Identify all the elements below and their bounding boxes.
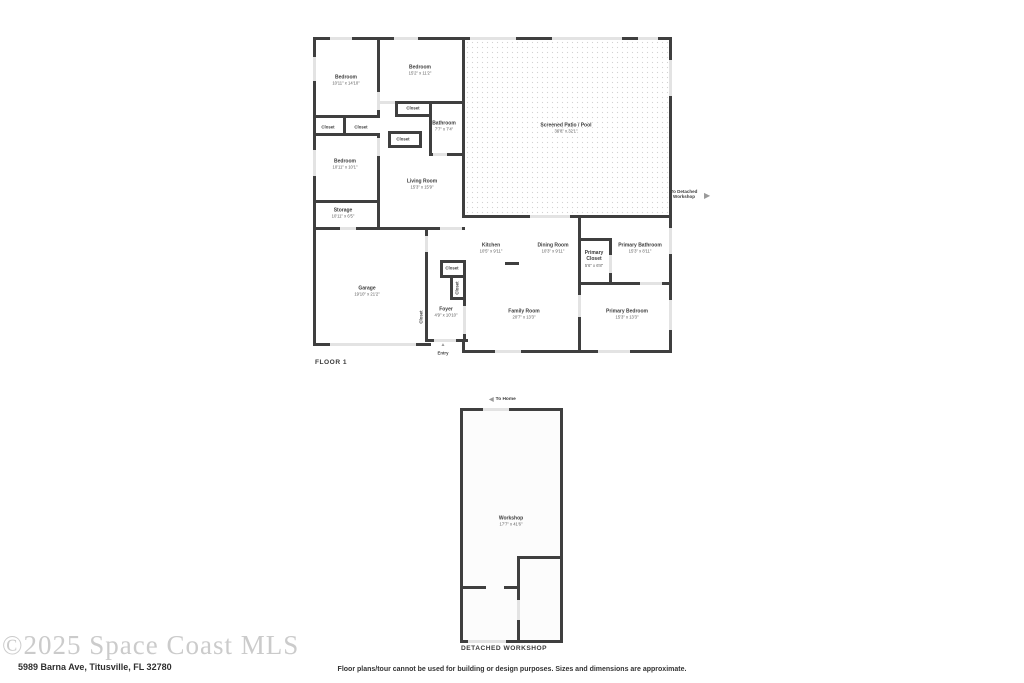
room-label-bathroom: Bathroom 7'7" x 7'4": [432, 120, 456, 132]
wall: [560, 408, 563, 643]
wall: [313, 37, 316, 346]
room-dims: 15'2" x 11'2": [409, 71, 432, 76]
arrow-left-icon: ◀: [489, 396, 494, 403]
wall-opening: [380, 101, 395, 104]
wall-opening: [640, 282, 662, 285]
wall: [313, 115, 380, 118]
wall-opening: [495, 350, 521, 353]
room-label-screened-patio: Screened Patio / Pool 36'8" x 32'1": [540, 122, 591, 134]
wall: [377, 200, 380, 230]
arrow-right-icon: ▶: [704, 191, 710, 200]
wall: [440, 260, 443, 278]
wall-opening: [468, 640, 506, 643]
wall-opening: [517, 600, 520, 620]
wall: [388, 131, 391, 148]
wall: [463, 260, 466, 300]
closet-label: Closet: [419, 309, 424, 324]
wall: [388, 131, 422, 134]
to-detached-workshop-nav[interactable]: To Detached Workshop ▶: [664, 189, 704, 199]
wall: [460, 586, 486, 589]
floor1-caption: FLOOR 1: [315, 359, 347, 366]
wall-opening: [598, 350, 630, 353]
room-dims: 10'11" x 10'1": [333, 165, 358, 170]
wall-opening: [394, 37, 418, 40]
to-detached-workshop-label: To Detached Workshop: [664, 189, 704, 199]
wall: [504, 586, 518, 589]
wall: [505, 262, 519, 265]
room-dims: 10'11" x 14'10": [332, 81, 359, 86]
room-label-bedroom-2: Bedroom 15'2" x 11'2": [409, 64, 432, 76]
wall-opening: [425, 236, 428, 252]
room-label-primary-bathroom: Primary Bathroom 15'3" x 8'11": [618, 242, 662, 254]
wall-opening: [669, 300, 672, 330]
wall: [517, 556, 563, 559]
entry-label: Entry: [438, 351, 449, 356]
room-label-primary-bedroom: Primary Bedroom 15'3" x 13'3": [606, 308, 648, 320]
room-dims: 19'10" x 21'2": [354, 292, 379, 297]
closet-label: Closet: [445, 266, 458, 271]
wall-opening: [330, 343, 416, 346]
closet-label: Closet: [396, 137, 409, 142]
wall: [460, 408, 563, 411]
wall-opening: [669, 228, 672, 254]
room-label-kitchen: Kitchen 10'5" x 9'11": [480, 242, 503, 254]
closet-label: Closet: [455, 280, 460, 295]
wall-opening: [313, 57, 316, 81]
room-dims: 7'7" x 7'4": [432, 127, 456, 132]
mls-watermark: ©2025 Space Coast MLS: [2, 630, 299, 661]
room-dims: 15'3" x 15'9": [407, 185, 437, 190]
room-dims: 15'3" x 8'11": [618, 249, 662, 254]
room-dims: 10'5" x 9'11": [480, 249, 503, 254]
wall-opening: [483, 408, 509, 411]
room-dims: 17'7" x 41'6": [499, 522, 523, 527]
to-home-nav[interactable]: ◀ To Home: [489, 396, 516, 403]
wall-opening: [609, 255, 612, 273]
wall-opening: [313, 150, 316, 176]
wall-opening: [578, 295, 581, 317]
room-dims: 36'8" x 32'1": [540, 129, 591, 134]
wall: [343, 115, 346, 136]
wall: [313, 133, 380, 136]
disclaimer-text: Floor plans/tour cannot be used for buil…: [0, 666, 1024, 673]
room-dims: 20'7" x 13'3": [508, 315, 539, 320]
wall-opening: [463, 306, 466, 334]
wall: [578, 238, 612, 241]
room-label-living-room: Living Room 15'3" x 15'9": [407, 178, 437, 190]
room-label-family-room: Family Room 20'7" x 13'3": [508, 308, 539, 320]
room-name: Primary Closet: [580, 250, 608, 263]
wall: [460, 408, 463, 643]
wall-opening: [530, 215, 570, 218]
wall: [313, 200, 380, 203]
wall-opening: [470, 37, 516, 40]
entry-arrow-icon: ▲: [441, 342, 446, 348]
to-home-label: To Home: [496, 397, 516, 402]
wall: [395, 114, 432, 117]
room-label-garage: Garage 19'10" x 21'2": [354, 285, 379, 297]
closet-label: Closet: [321, 125, 334, 130]
floor-plan-page: Bedroom 10'11" x 14'10" Bedroom 15'2" x …: [0, 0, 1024, 683]
wall-opening: [377, 138, 380, 156]
wall: [462, 37, 465, 218]
closet-label: Closet: [406, 106, 419, 111]
wall: [419, 131, 422, 148]
room-dims: 4'9" x 10'10": [435, 313, 458, 318]
room-label-workshop: Workshop 17'7" x 41'6": [499, 515, 523, 527]
room-dims: 10'11" x 6'5": [332, 214, 355, 219]
wall-opening: [340, 227, 356, 230]
room-label-storage: Storage 10'11" x 6'5": [332, 207, 355, 219]
wall-opening: [433, 153, 447, 156]
workshop-caption: DETACHED WORKSHOP: [461, 645, 547, 652]
wall-opening: [669, 60, 672, 96]
closet-label: Closet: [354, 125, 367, 130]
room-dims: 10'3" x 9'11": [537, 249, 568, 254]
wall-opening: [552, 37, 622, 40]
room-label-bedroom-3: Bedroom 10'11" x 10'1": [333, 158, 358, 170]
wall: [578, 282, 581, 353]
wall-opening: [330, 37, 352, 40]
wall-opening: [638, 37, 658, 40]
room-dims: 15'3" x 13'3": [606, 315, 648, 320]
wall: [388, 145, 422, 148]
room-dims: 5'6" x 6'8": [580, 263, 608, 268]
room-label-foyer: Foyer 4'9" x 10'10": [435, 306, 458, 318]
room-label-dining-room: Dining Room 10'3" x 9'11": [537, 242, 568, 254]
wall-opening: [440, 227, 462, 230]
wall: [462, 350, 672, 353]
room-label-primary-closet: Primary Closet 5'6" x 6'8": [580, 250, 608, 268]
room-label-bedroom-1: Bedroom 10'11" x 14'10": [332, 74, 359, 86]
